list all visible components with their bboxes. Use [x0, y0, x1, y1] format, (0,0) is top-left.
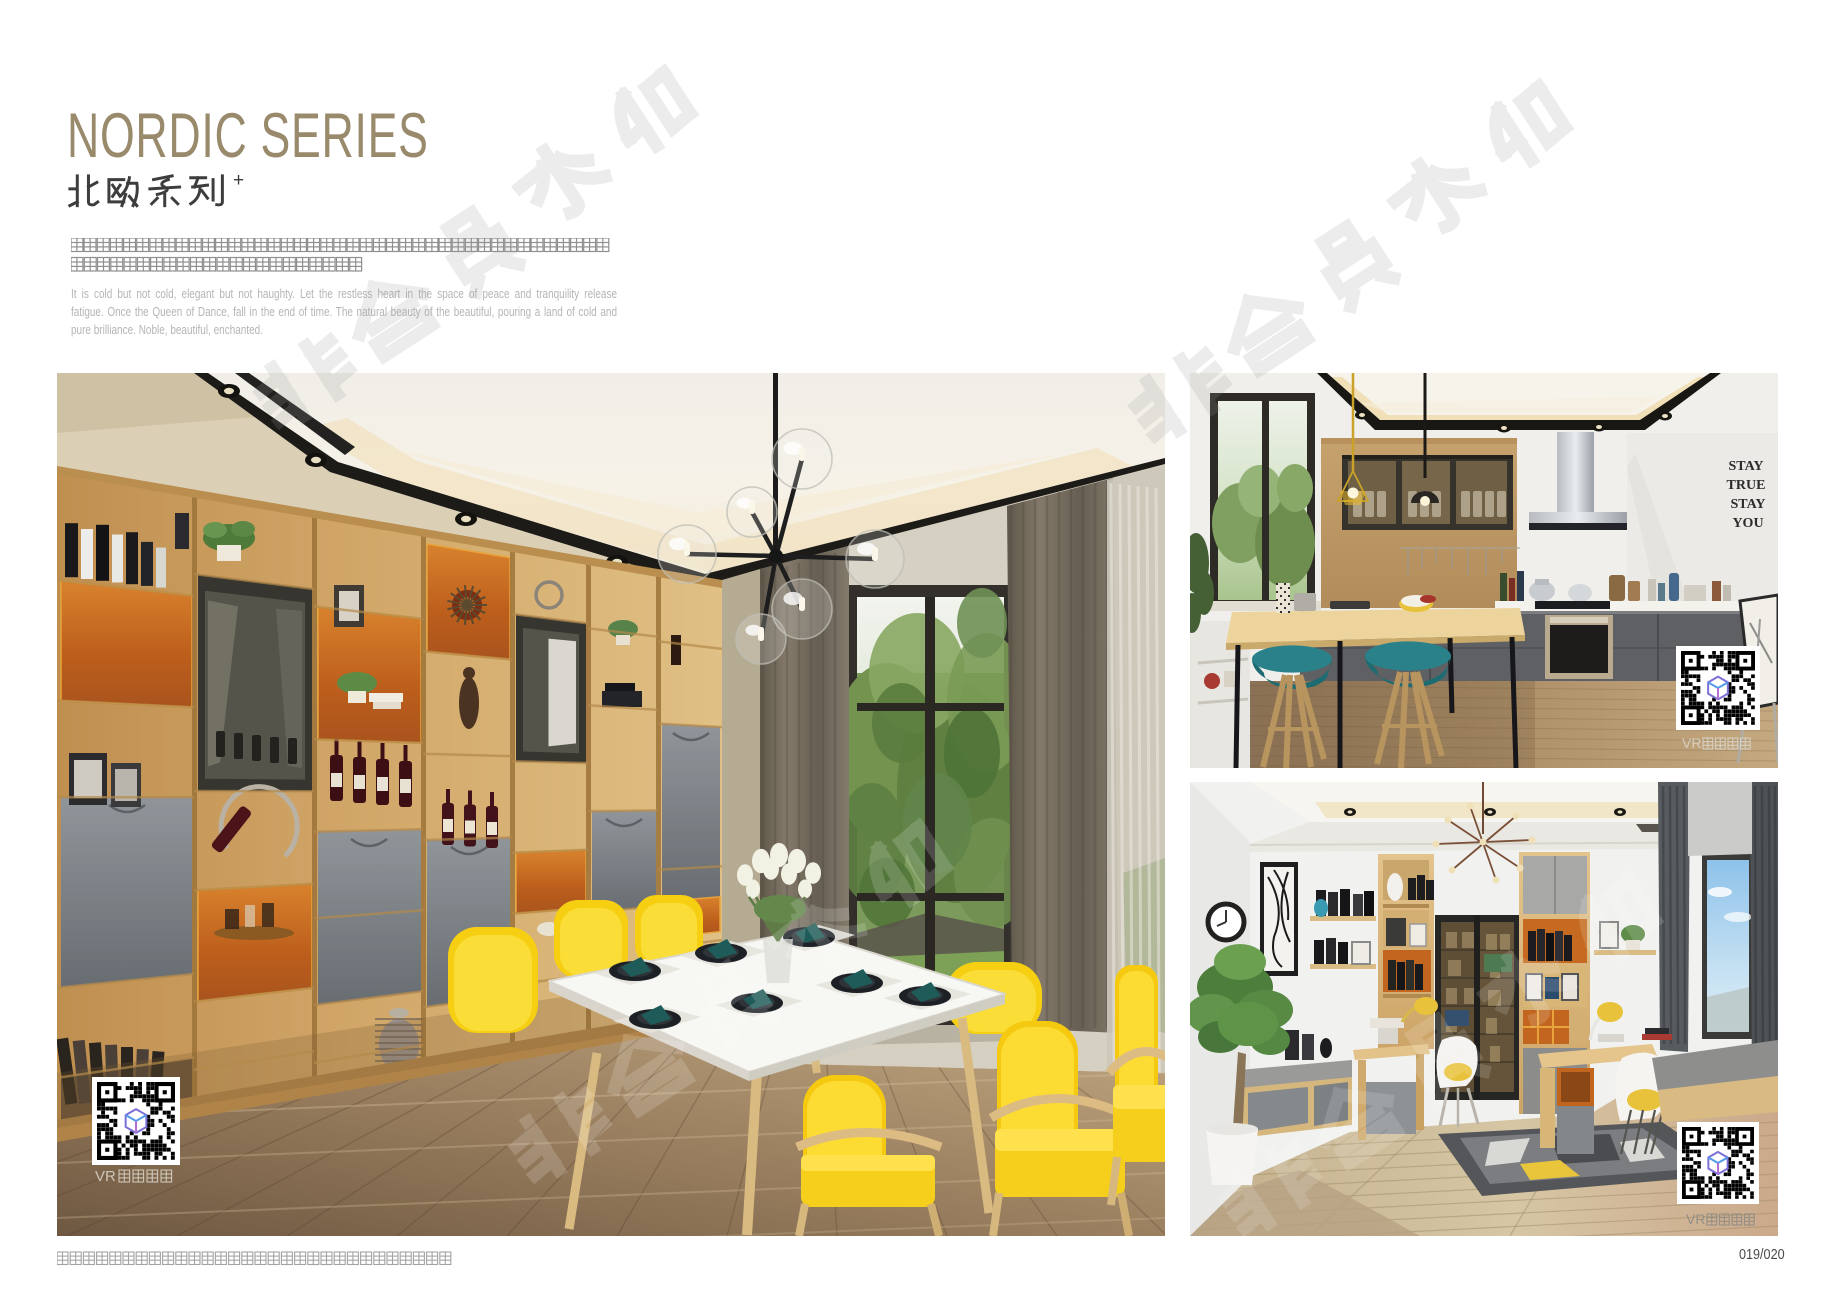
svg-text:+: + [233, 174, 244, 191]
svg-text:STAY: STAY [1730, 497, 1765, 512]
svg-text:VR: VR [1686, 1211, 1705, 1227]
svg-text:STAY: STAY [1728, 459, 1763, 474]
svg-text:TRUE: TRUE [1727, 478, 1766, 493]
svg-text:VR: VR [95, 1168, 116, 1185]
svg-text:YOU: YOU [1732, 516, 1763, 531]
svg-text:VR: VR [1682, 735, 1701, 751]
